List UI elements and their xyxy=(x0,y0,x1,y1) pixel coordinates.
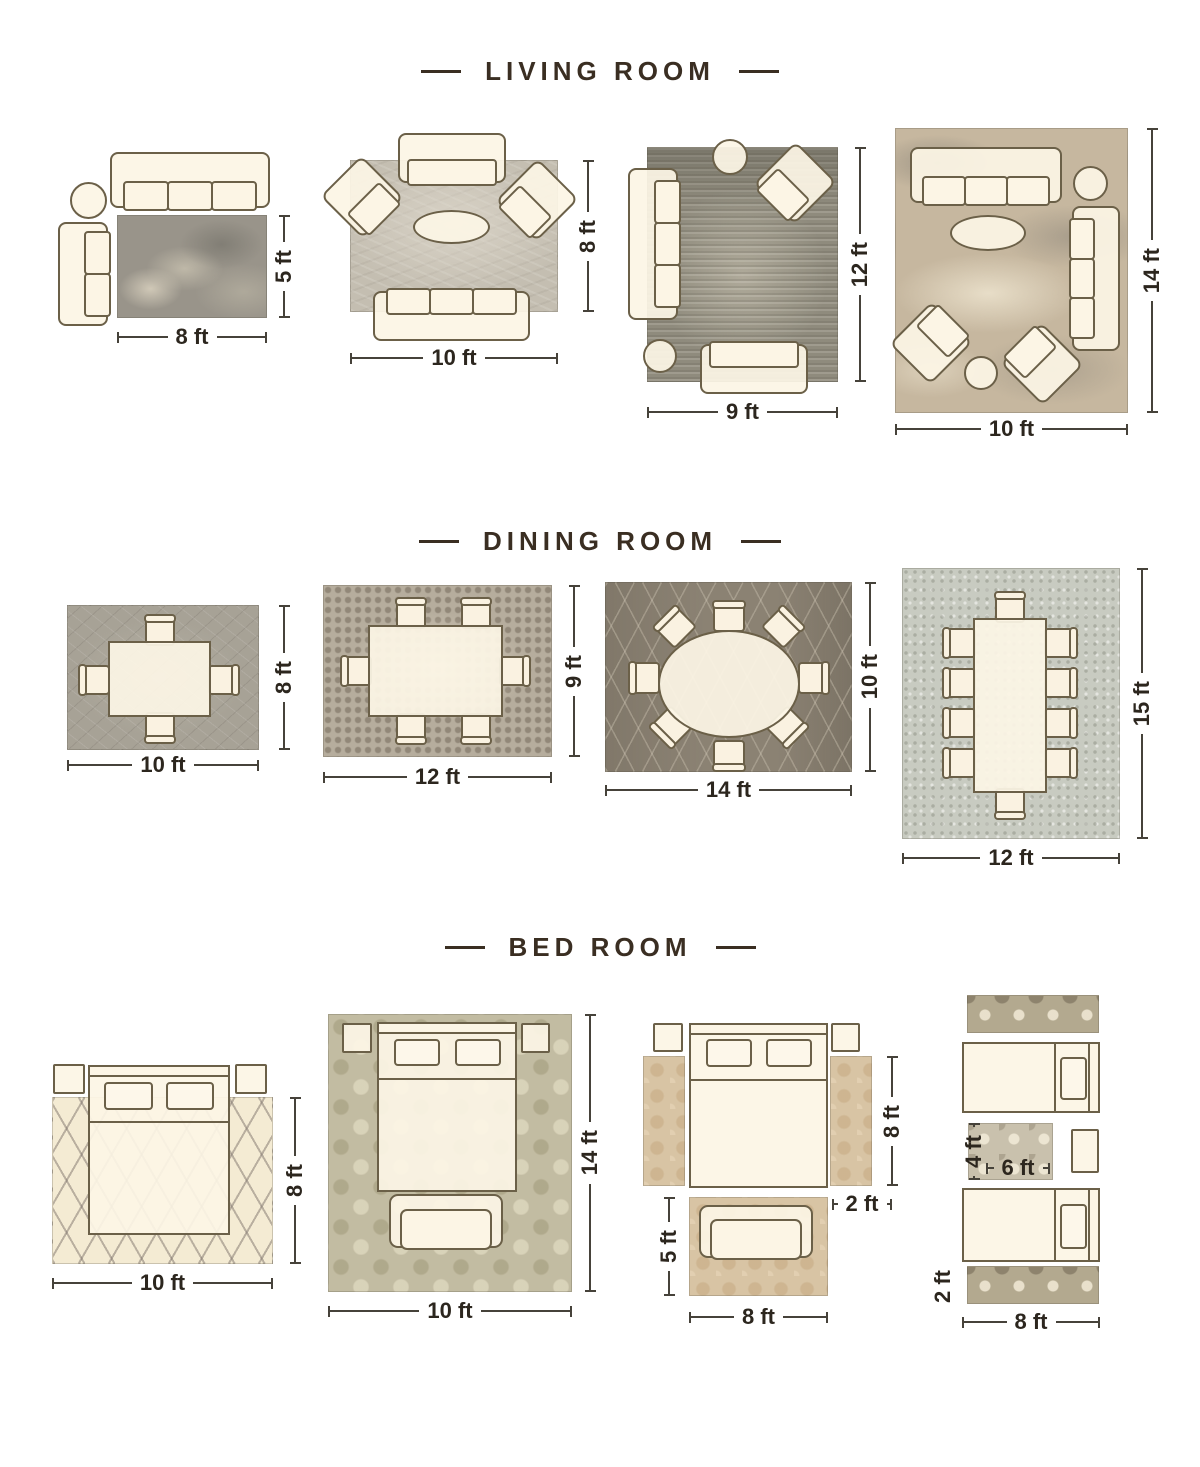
area-rug xyxy=(117,215,267,318)
dimension-label: 10 ft xyxy=(132,1270,193,1296)
dimension-line xyxy=(294,1205,296,1262)
dimension-line xyxy=(836,407,838,418)
pillow xyxy=(166,1082,214,1110)
width-dimension: 12 ft xyxy=(902,846,1120,870)
height-dimension: 8 ft xyxy=(576,160,600,312)
blanket-line xyxy=(691,1079,826,1081)
title-dash xyxy=(419,540,459,543)
dimension-line xyxy=(570,1306,572,1317)
seat-cushion xyxy=(123,181,169,211)
nightstand xyxy=(1071,1129,1099,1173)
sofa xyxy=(628,168,678,320)
dimension-line xyxy=(850,785,852,796)
title-dash xyxy=(739,70,779,73)
dimension-label: 5 ft xyxy=(271,242,297,291)
pillow xyxy=(104,1082,153,1110)
dining-chair xyxy=(946,708,976,738)
nightstand xyxy=(53,1064,85,1094)
dimension-line xyxy=(1151,130,1153,240)
seat-cushion xyxy=(922,176,966,206)
sofa xyxy=(1072,206,1120,351)
dimension-label: 10 ft xyxy=(419,1298,480,1324)
seat-cushions xyxy=(654,180,681,307)
nightstand xyxy=(521,1023,550,1053)
height-dimension: 12 ft xyxy=(848,147,872,382)
foot-rug-height-dimension: 5 ft xyxy=(657,1197,681,1296)
dimension-line xyxy=(1126,424,1128,435)
headboard xyxy=(377,1022,517,1034)
twin-bed xyxy=(962,1188,1100,1262)
sofa xyxy=(910,147,1062,203)
seat-cushion xyxy=(472,288,517,315)
title-dash xyxy=(421,70,461,73)
seat-cushions xyxy=(922,176,1049,206)
dining-chair xyxy=(946,668,976,698)
dining-chair xyxy=(713,604,745,632)
seat-cushions xyxy=(386,288,518,315)
height-dimension: 9 ft xyxy=(562,585,586,757)
dimension-line xyxy=(589,1016,591,1122)
bed xyxy=(689,1023,828,1188)
seat-cushion xyxy=(211,181,257,211)
dimension-line xyxy=(668,1271,670,1294)
blanket-line xyxy=(1054,1190,1056,1260)
dimension-line xyxy=(897,428,981,430)
dimension-line xyxy=(587,261,589,311)
runner-rug xyxy=(643,1056,685,1186)
dimension-line xyxy=(887,1184,898,1186)
dimension-line xyxy=(691,1316,734,1318)
dimension-line xyxy=(352,357,423,359)
sofa xyxy=(373,291,530,341)
seat-cushion xyxy=(1069,258,1095,300)
runner-length-dimension: 8 ft xyxy=(880,1056,904,1186)
section-title-dining-room: DINING ROOM xyxy=(0,526,1200,557)
dimension-label: 8 ft xyxy=(271,653,297,702)
dimension-line xyxy=(468,776,550,778)
dimension-line xyxy=(855,380,866,382)
title-dash xyxy=(716,946,756,949)
dimension-line xyxy=(54,1282,132,1284)
pillow xyxy=(1060,1057,1087,1100)
rug-size-guide: LIVING ROOM 8 ft 5 ft 10 ft 8 ft xyxy=(0,0,1200,1467)
headboard xyxy=(88,1065,230,1077)
bench xyxy=(699,1205,813,1258)
dimension-line xyxy=(325,776,407,778)
round-side-table xyxy=(964,356,998,390)
height-dimension: 8 ft xyxy=(283,1097,307,1264)
dimension-line xyxy=(283,607,285,653)
loveseat xyxy=(58,222,108,326)
foot-rug-width-dimension: 8 ft xyxy=(689,1305,828,1329)
bed xyxy=(377,1022,517,1192)
dimension-line xyxy=(964,1321,1007,1323)
seat-cushion xyxy=(654,222,681,266)
dimension-line xyxy=(569,755,580,757)
seat-cushion xyxy=(84,273,111,317)
dimension-label: 10 ft xyxy=(857,646,883,707)
blanket-line xyxy=(1054,1044,1056,1111)
seat-cushion xyxy=(1069,297,1095,339)
dining-chair xyxy=(1044,748,1074,778)
dimension-line xyxy=(891,1146,893,1185)
dimension-line xyxy=(859,295,861,380)
seat-cushions xyxy=(123,181,257,211)
dining-chair xyxy=(713,740,745,768)
dimension-label: 10 ft xyxy=(132,752,193,778)
seat-cushion xyxy=(407,159,496,186)
dimension-label: 14 ft xyxy=(698,777,759,803)
dimension-line xyxy=(194,764,257,766)
dimension-line xyxy=(119,336,168,338)
dimension-line xyxy=(783,1316,826,1318)
blanket-line xyxy=(379,1078,515,1080)
seat-cushion xyxy=(964,176,1008,206)
dimension-label: 8 ft xyxy=(879,1097,905,1146)
dimension-label: 12 ft xyxy=(847,234,873,295)
dimension-label: 8 ft xyxy=(282,1156,308,1205)
width-dimension: 10 ft xyxy=(350,346,558,370)
dimension-line xyxy=(904,857,980,859)
runner-rug xyxy=(830,1056,872,1186)
dimension-line xyxy=(283,702,285,748)
dimension-line xyxy=(283,291,285,316)
seat-cushions xyxy=(84,231,111,317)
dimension-line xyxy=(1141,734,1143,837)
runner-rug xyxy=(967,1266,1099,1304)
dimension-line xyxy=(664,1294,675,1296)
dimension-line xyxy=(481,1310,570,1312)
dimension-line xyxy=(859,149,861,234)
dimension-line xyxy=(585,1290,596,1292)
runner-rug xyxy=(967,995,1099,1033)
oval-coffee-table xyxy=(413,210,490,244)
dimension-label: 12 ft xyxy=(980,845,1041,871)
width-dimension: 14 ft xyxy=(605,778,852,802)
height-dimension: 14 ft xyxy=(1140,128,1164,413)
seat-cushion xyxy=(1006,176,1050,206)
oval-dining-table xyxy=(658,630,800,738)
dimension-label: 8 ft xyxy=(168,324,217,350)
section-title-text: DINING ROOM xyxy=(483,526,717,557)
seat-cushion xyxy=(167,181,213,211)
dimension-line xyxy=(1137,837,1148,839)
dimension-line xyxy=(759,789,850,791)
headboard xyxy=(689,1023,828,1035)
pillow xyxy=(1060,1204,1087,1249)
dimension-line xyxy=(294,1099,296,1156)
runner-length-dimension: 8 ft xyxy=(962,1310,1100,1334)
height-dimension: 14 ft xyxy=(578,1014,602,1292)
dining-chair xyxy=(82,665,110,695)
dining-table xyxy=(973,618,1047,793)
title-dash xyxy=(741,540,781,543)
seat-cushion xyxy=(654,180,681,224)
round-side-table xyxy=(1073,166,1108,201)
oval-coffee-table xyxy=(950,215,1026,251)
pillow xyxy=(455,1039,501,1066)
bench xyxy=(389,1194,503,1248)
dimension-label: 10 ft xyxy=(423,345,484,371)
width-dimension: 12 ft xyxy=(323,765,552,789)
dimension-label: 12 ft xyxy=(407,764,468,790)
dimension-label: 2 ft xyxy=(930,1262,956,1311)
dimension-line xyxy=(607,789,698,791)
nightstand xyxy=(831,1023,860,1052)
dining-table xyxy=(108,641,211,717)
dimension-line xyxy=(1048,1163,1050,1174)
seat-cushion xyxy=(1069,218,1095,260)
dimension-label: 8 ft xyxy=(734,1304,783,1330)
dimension-label: 9 ft xyxy=(561,647,587,696)
dimension-line xyxy=(1098,1317,1100,1328)
dimension-line xyxy=(1056,1321,1099,1323)
blanket-line xyxy=(90,1121,228,1123)
dimension-line xyxy=(583,310,594,312)
dimension-line xyxy=(891,1058,893,1097)
dimension-line xyxy=(257,760,259,771)
dimension-line xyxy=(869,708,871,770)
dining-chair xyxy=(396,713,426,741)
runner-width-dimension: 2 ft xyxy=(832,1192,892,1216)
height-dimension: 8 ft xyxy=(272,605,296,750)
loveseat xyxy=(398,133,506,183)
dimension-label: 8 ft xyxy=(575,212,601,261)
dimension-label: 15 ft xyxy=(1129,673,1155,734)
dimension-line xyxy=(550,772,552,783)
sofa xyxy=(110,152,270,208)
twin-bed xyxy=(962,1042,1100,1113)
dimension-line xyxy=(283,217,285,242)
dining-chair xyxy=(461,713,491,741)
dining-chair xyxy=(208,665,236,695)
dimension-line xyxy=(556,353,558,364)
dimension-line xyxy=(573,696,575,756)
dimension-line xyxy=(668,1199,670,1222)
width-dimension: 9 ft xyxy=(647,400,838,424)
width-dimension: 10 ft xyxy=(67,753,259,777)
nightstand xyxy=(653,1023,683,1052)
between-rug-width-dimension: 6 ft xyxy=(986,1156,1050,1180)
dimension-label: 2 ft xyxy=(838,1191,887,1217)
dining-chair xyxy=(1044,668,1074,698)
height-dimension: 5 ft xyxy=(272,215,296,318)
section-title-living-room: LIVING ROOM xyxy=(0,56,1200,87)
headboard xyxy=(1088,1042,1100,1113)
dimension-line xyxy=(1042,857,1118,859)
loveseat xyxy=(700,344,808,394)
seat-cushion xyxy=(84,231,111,275)
seat-cushions xyxy=(407,159,496,186)
dimension-line xyxy=(1118,853,1120,864)
dimension-line xyxy=(969,1178,980,1180)
seat-cushion xyxy=(429,288,474,315)
dining-chair xyxy=(946,748,976,778)
dimension-line xyxy=(865,770,876,772)
headboard xyxy=(1088,1188,1100,1262)
width-dimension: 10 ft xyxy=(895,417,1128,441)
dimension-line xyxy=(1147,411,1158,413)
width-dimension: 10 ft xyxy=(328,1299,572,1323)
width-dimension: 8 ft xyxy=(117,325,267,349)
bed xyxy=(88,1065,230,1235)
dimension-label: 6 ft xyxy=(994,1155,1043,1181)
dimension-line xyxy=(826,1312,828,1323)
dimension-label: 14 ft xyxy=(1139,240,1165,301)
round-side-table xyxy=(712,139,748,175)
dimension-line xyxy=(193,1282,271,1284)
dimension-label: 5 ft xyxy=(656,1222,682,1271)
dimension-line xyxy=(279,748,290,750)
dimension-label: 9 ft xyxy=(718,399,767,425)
section-title-text: BED ROOM xyxy=(509,932,692,963)
title-dash xyxy=(445,946,485,949)
dimension-line xyxy=(869,584,871,646)
dimension-line xyxy=(890,1199,892,1210)
pillow xyxy=(706,1039,752,1067)
runner-width-dimension: 2 ft xyxy=(931,1262,955,1308)
seat-cushion xyxy=(654,264,681,308)
dining-chair xyxy=(632,662,660,694)
nightstand xyxy=(342,1023,372,1053)
dimension-line xyxy=(1042,428,1126,430)
pillow xyxy=(766,1039,812,1067)
dining-chair xyxy=(499,656,527,686)
dimension-line xyxy=(330,1310,419,1312)
dimension-line xyxy=(485,357,556,359)
section-title-text: LIVING ROOM xyxy=(485,56,715,87)
seat-cushion xyxy=(386,288,431,315)
dimension-line xyxy=(1141,570,1143,673)
dimension-line xyxy=(271,1278,273,1289)
round-side-table xyxy=(70,182,107,219)
dimension-line xyxy=(1151,301,1153,411)
pillow xyxy=(394,1039,440,1066)
dimension-line xyxy=(290,1262,301,1264)
height-dimension: 15 ft xyxy=(1130,568,1154,839)
height-dimension: 10 ft xyxy=(858,582,882,772)
dining-chair xyxy=(798,662,826,694)
dimension-line xyxy=(69,764,132,766)
seat-cushions xyxy=(709,341,798,368)
section-title-bed-room: BED ROOM xyxy=(0,932,1200,963)
dimension-line xyxy=(767,411,836,413)
dimension-label: 8 ft xyxy=(1007,1309,1056,1335)
dimension-line xyxy=(279,316,290,318)
seat-cushion xyxy=(709,341,798,368)
dimension-label: 14 ft xyxy=(577,1122,603,1183)
dining-chair xyxy=(1044,628,1074,658)
dimension-line xyxy=(265,332,267,343)
width-dimension: 10 ft xyxy=(52,1271,273,1295)
dimension-line xyxy=(589,1184,591,1290)
dining-chair xyxy=(1044,708,1074,738)
between-rug-height-dimension: 4 ft xyxy=(962,1123,986,1180)
dimension-line xyxy=(649,411,718,413)
dimension-label: 4 ft xyxy=(961,1127,987,1176)
dimension-line xyxy=(587,162,589,212)
dining-table xyxy=(368,625,503,717)
round-side-table xyxy=(643,339,677,373)
dining-chair xyxy=(946,628,976,658)
seat-cushions xyxy=(1069,218,1095,339)
nightstand xyxy=(235,1064,267,1094)
dimension-line xyxy=(573,587,575,647)
dimension-line xyxy=(217,336,266,338)
dimension-label: 10 ft xyxy=(981,416,1042,442)
